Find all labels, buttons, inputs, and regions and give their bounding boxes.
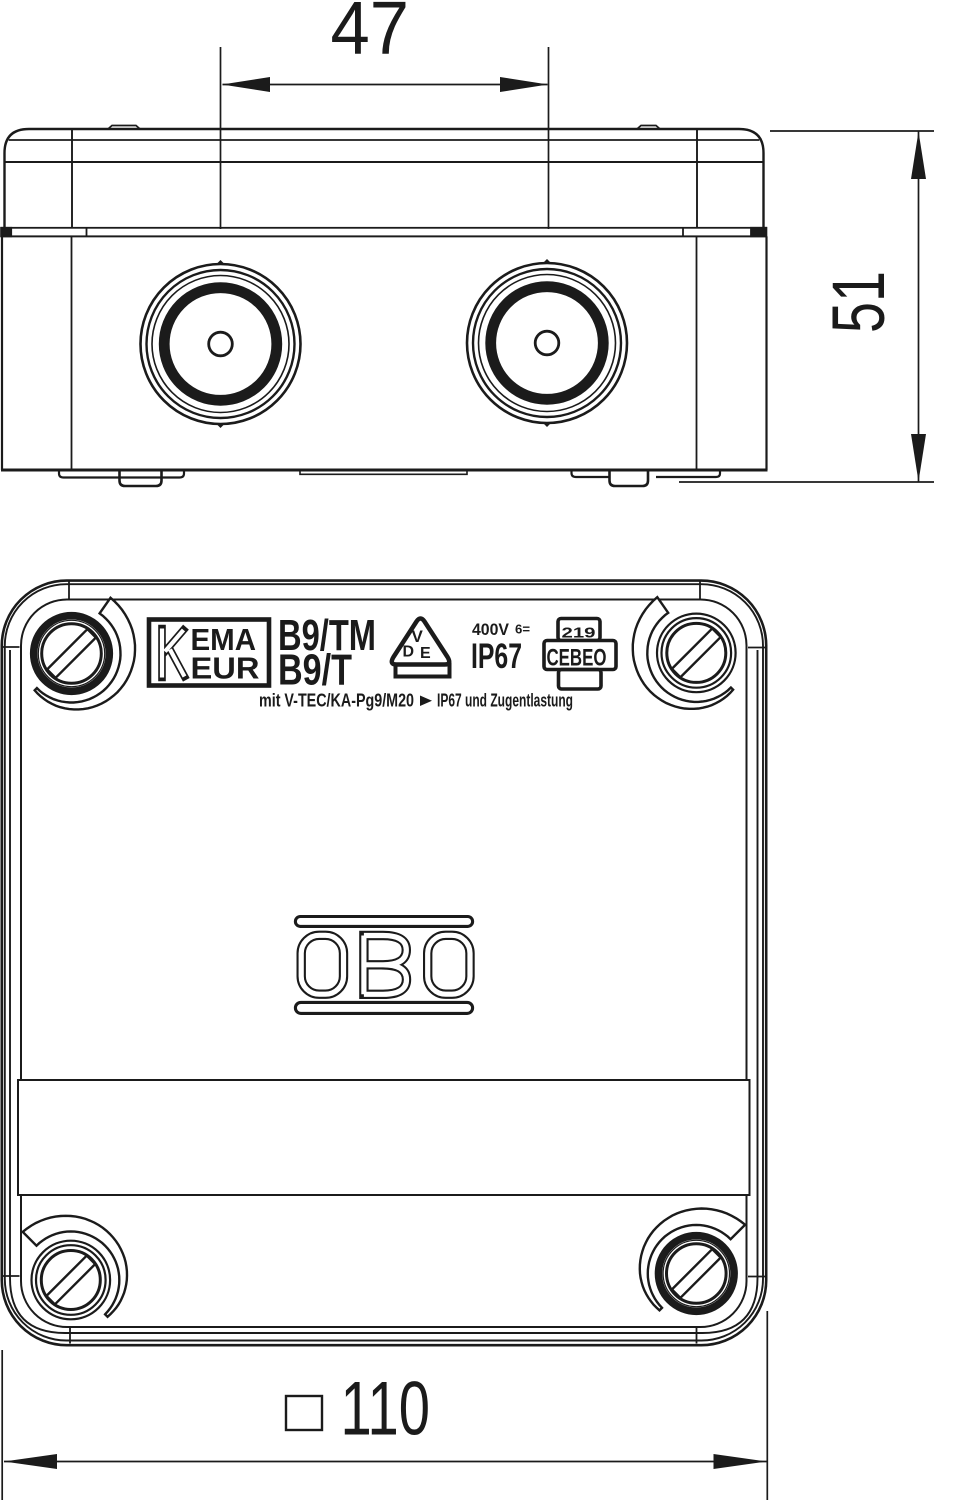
svg-text:51: 51 (817, 271, 900, 333)
svg-text:IP67: IP67 (471, 637, 522, 676)
svg-text:E: E (420, 645, 431, 662)
svg-text:47: 47 (331, 0, 410, 70)
svg-text:CEBEO: CEBEO (547, 645, 607, 672)
svg-text:110: 110 (341, 1367, 431, 1452)
svg-text:mit V-TEC/KA-Pg9/M20: mit V-TEC/KA-Pg9/M20 (259, 691, 414, 711)
svg-text:D: D (403, 644, 415, 661)
svg-text:6=: 6= (515, 622, 530, 637)
svg-text:B9/T: B9/T (278, 646, 352, 695)
svg-text:IP67 und Zugentlastung: IP67 und Zugentlastung (437, 691, 573, 711)
svg-text:EUR: EUR (191, 652, 260, 686)
